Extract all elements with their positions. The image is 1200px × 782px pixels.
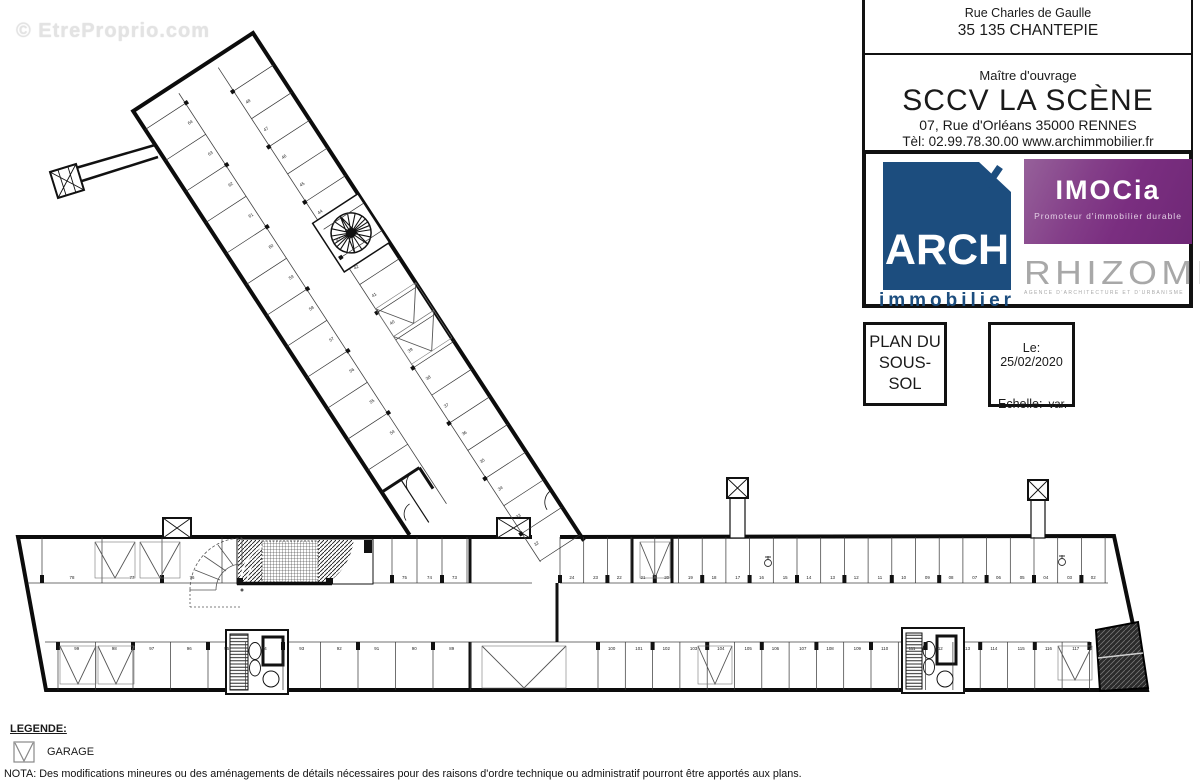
wheelchair-icon [765,555,1066,567]
svg-text:108: 108 [826,646,834,651]
svg-text:39: 39 [407,346,414,353]
svg-text:63: 63 [207,150,214,157]
ramp [237,539,373,584]
date-label: Le: 25/02/2020 [991,341,1072,369]
svg-text:38: 38 [425,374,432,381]
svg-text:54: 54 [389,429,396,436]
legend-item-garage: GARAGE [13,741,94,763]
svg-text:57: 57 [328,336,335,343]
svg-text:10: 10 [901,575,906,580]
owner-section: Maître d'ouvrage SCCV LA SCÈNE 07, Rue d… [862,55,1193,154]
svg-text:94: 94 [262,646,267,651]
stair-core-right [902,628,964,693]
svg-text:03: 03 [1067,575,1072,580]
svg-text:61: 61 [247,212,254,219]
svg-text:97: 97 [149,646,154,651]
svg-text:13: 13 [830,575,835,580]
svg-text:93: 93 [299,646,304,651]
svg-text:116: 116 [1045,646,1053,651]
svg-text:44: 44 [317,208,324,215]
svg-text:17: 17 [735,575,740,580]
svg-text:102: 102 [663,646,671,651]
nota-text: NOTA: Des modifications mineures ou des … [4,768,1194,780]
svg-text:62: 62 [227,181,234,188]
svg-text:76: 76 [190,575,195,580]
svg-text:77: 77 [130,575,135,580]
svg-text:99: 99 [74,646,79,651]
svg-text:12: 12 [854,575,859,580]
address-line2: 35 135 CHANTEPIE [865,22,1191,40]
svg-text:89: 89 [449,646,454,651]
arch-logo-subtitle: immobilier [878,290,1016,312]
svg-text:22: 22 [617,575,622,580]
svg-text:37: 37 [443,402,450,409]
plan-title-line2: SOUS-SOL [866,353,944,395]
legend-garage-label: GARAGE [47,746,94,758]
arch-immobilier-logo: ARCH [883,162,1011,290]
svg-text:04: 04 [1043,575,1048,580]
rhizome-logo-name: RHIZOME [1024,256,1200,290]
main-building [18,536,1147,690]
owner-label: Maître d'ouvrage [865,55,1191,83]
svg-text:20: 20 [664,575,669,580]
vent-shaft-tall-2 [1028,480,1048,538]
svg-text:90: 90 [412,646,417,651]
svg-text:104: 104 [717,646,725,651]
svg-text:73: 73 [452,575,457,580]
svg-text:111: 111 [909,646,916,651]
project-address: Rue Charles de Gaulle 35 135 CHANTEPIE [862,0,1193,55]
svg-text:74: 74 [427,575,432,580]
svg-text:109: 109 [854,646,862,651]
svg-text:19: 19 [688,575,693,580]
svg-text:14: 14 [806,575,811,580]
scale-value: var. [1048,399,1067,411]
svg-text:16: 16 [759,575,764,580]
entry-corridor [50,145,158,198]
svg-text:117: 117 [1072,646,1080,651]
svg-text:40: 40 [389,319,396,326]
svg-text:15: 15 [783,575,788,580]
svg-text:23: 23 [593,575,598,580]
svg-text:75: 75 [402,575,407,580]
garage-symbol-icon [13,741,35,763]
svg-text:05: 05 [1020,575,1025,580]
svg-text:101: 101 [635,646,643,651]
svg-text:32: 32 [533,540,540,547]
svg-text:11: 11 [878,575,883,580]
scale-row: Echelle:var. [998,397,1072,411]
svg-text:106: 106 [772,646,780,651]
svg-text:58: 58 [308,305,315,312]
svg-text:98: 98 [112,646,117,651]
logos-section: ARCH immobilier IMOCia Promoteur d'immob… [862,154,1193,308]
svg-text:105: 105 [744,646,752,651]
svg-text:45: 45 [299,181,306,188]
arch-logo-graphic: ARCH [883,162,1011,290]
scale-label: Echelle: [998,397,1042,411]
svg-text:59: 59 [288,274,295,281]
svg-text:35: 35 [479,457,486,464]
svg-text:08: 08 [949,575,954,580]
rhizome-logo: RHIZOME AGENCE D'ARCHITECTURE ET D'URBAN… [1024,256,1194,296]
svg-text:110: 110 [881,646,889,651]
svg-text:107: 107 [799,646,807,651]
svg-text:41: 41 [371,291,378,298]
svg-text:46: 46 [281,153,288,160]
floor-plan-page: © EtreProprio.com [0,0,1200,782]
plan-title-line1: PLAN DU [866,332,944,353]
imocia-logo: IMOCia Promoteur d'immobilier durable [1024,159,1192,244]
svg-text:06: 06 [996,575,1001,580]
imocia-logo-tagline: Promoteur d'immobilier durable [1024,211,1192,221]
vent-shaft-left [163,518,191,538]
svg-text:92: 92 [337,646,342,651]
svg-text:18: 18 [712,575,717,580]
svg-text:24: 24 [569,575,574,580]
svg-text:34: 34 [497,485,504,492]
svg-text:115: 115 [1018,646,1026,651]
stair-core-left [226,630,288,694]
svg-text:47: 47 [263,125,270,132]
svg-text:112: 112 [936,646,944,651]
curved-stair [190,538,244,607]
svg-text:91: 91 [374,646,379,651]
ramp-bottom-right [1096,622,1148,691]
svg-text:02: 02 [1091,575,1096,580]
owner-address: 07, Rue d'Orléans 35000 RENNES [865,117,1191,133]
legend-title: LEGENDE: [10,723,67,735]
svg-text:56: 56 [348,367,355,374]
owner-name: SCCV LA SCÈNE [865,86,1191,116]
wing-vestibule [382,468,448,535]
vent-shaft-tall-1 [727,478,748,538]
title-block: Rue Charles de Gaulle 35 135 CHANTEPIE M… [862,0,1193,308]
svg-text:100: 100 [608,646,616,651]
svg-text:ARCH: ARCH [885,226,1009,274]
svg-text:60: 60 [268,243,275,250]
svg-text:48: 48 [245,98,252,105]
svg-text:103: 103 [690,646,698,651]
svg-text:55: 55 [369,398,376,405]
svg-text:95: 95 [224,646,229,651]
svg-text:96: 96 [187,646,192,651]
svg-text:21: 21 [641,575,646,580]
owner-contact: Tèl: 02.99.78.30.00 www.archimmobilier.f… [865,134,1191,149]
svg-text:09: 09 [925,575,930,580]
svg-text:36: 36 [461,429,468,436]
svg-text:64: 64 [187,119,194,126]
svg-text:113: 113 [963,646,971,651]
svg-text:07: 07 [972,575,977,580]
date-scale-box: Le: 25/02/2020 Echelle:var. [988,322,1075,407]
svg-text:114: 114 [990,646,998,651]
plan-title-box: PLAN DU SOUS-SOL [863,322,947,406]
imocia-logo-name: IMOCia [1024,175,1192,206]
svg-text:78: 78 [70,575,75,580]
address-line1: Rue Charles de Gaulle [865,6,1191,20]
